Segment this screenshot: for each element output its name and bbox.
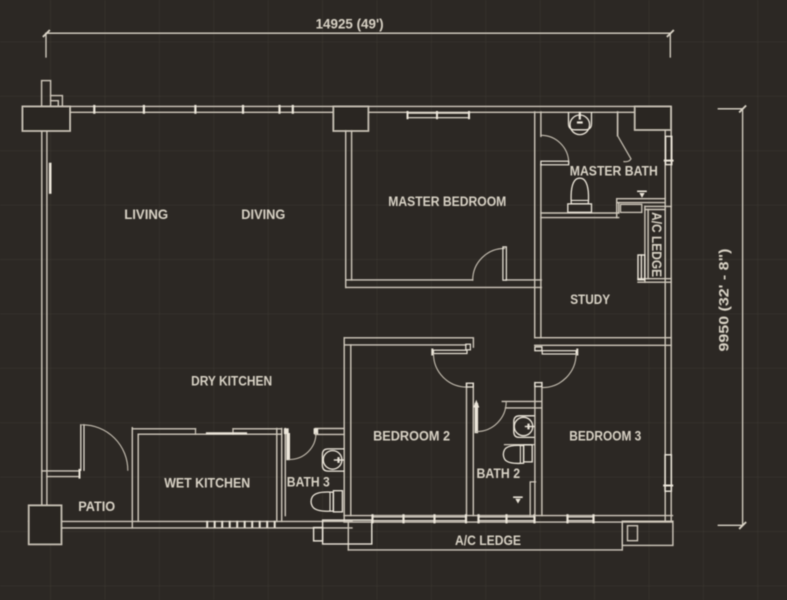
svg-text:MASTER BEDROOM: MASTER BEDROOM	[388, 194, 506, 209]
svg-text:BEDROOM 3: BEDROOM 3	[569, 428, 641, 443]
svg-text:A/C LEDGE: A/C LEDGE	[455, 533, 521, 548]
svg-text:BEDROOM 2: BEDROOM 2	[373, 429, 450, 444]
svg-text:DIVING: DIVING	[241, 207, 285, 222]
svg-text:PATIO: PATIO	[78, 499, 115, 514]
svg-text:DRY KITCHEN: DRY KITCHEN	[191, 373, 272, 388]
svg-text:A/C LEDGE: A/C LEDGE	[649, 212, 664, 277]
svg-text:BATH 3: BATH 3	[287, 474, 330, 489]
svg-text:BATH 2: BATH 2	[477, 466, 521, 481]
svg-text:14925 (49'): 14925 (49')	[316, 17, 384, 32]
svg-text:9950 (32' - 8"): 9950 (32' - 8")	[717, 249, 732, 352]
svg-text:LIVING: LIVING	[124, 207, 168, 222]
svg-text:STUDY: STUDY	[570, 292, 610, 307]
svg-text:WET KITCHEN: WET KITCHEN	[164, 475, 250, 490]
svg-text:MASTER BATH: MASTER BATH	[570, 163, 658, 178]
